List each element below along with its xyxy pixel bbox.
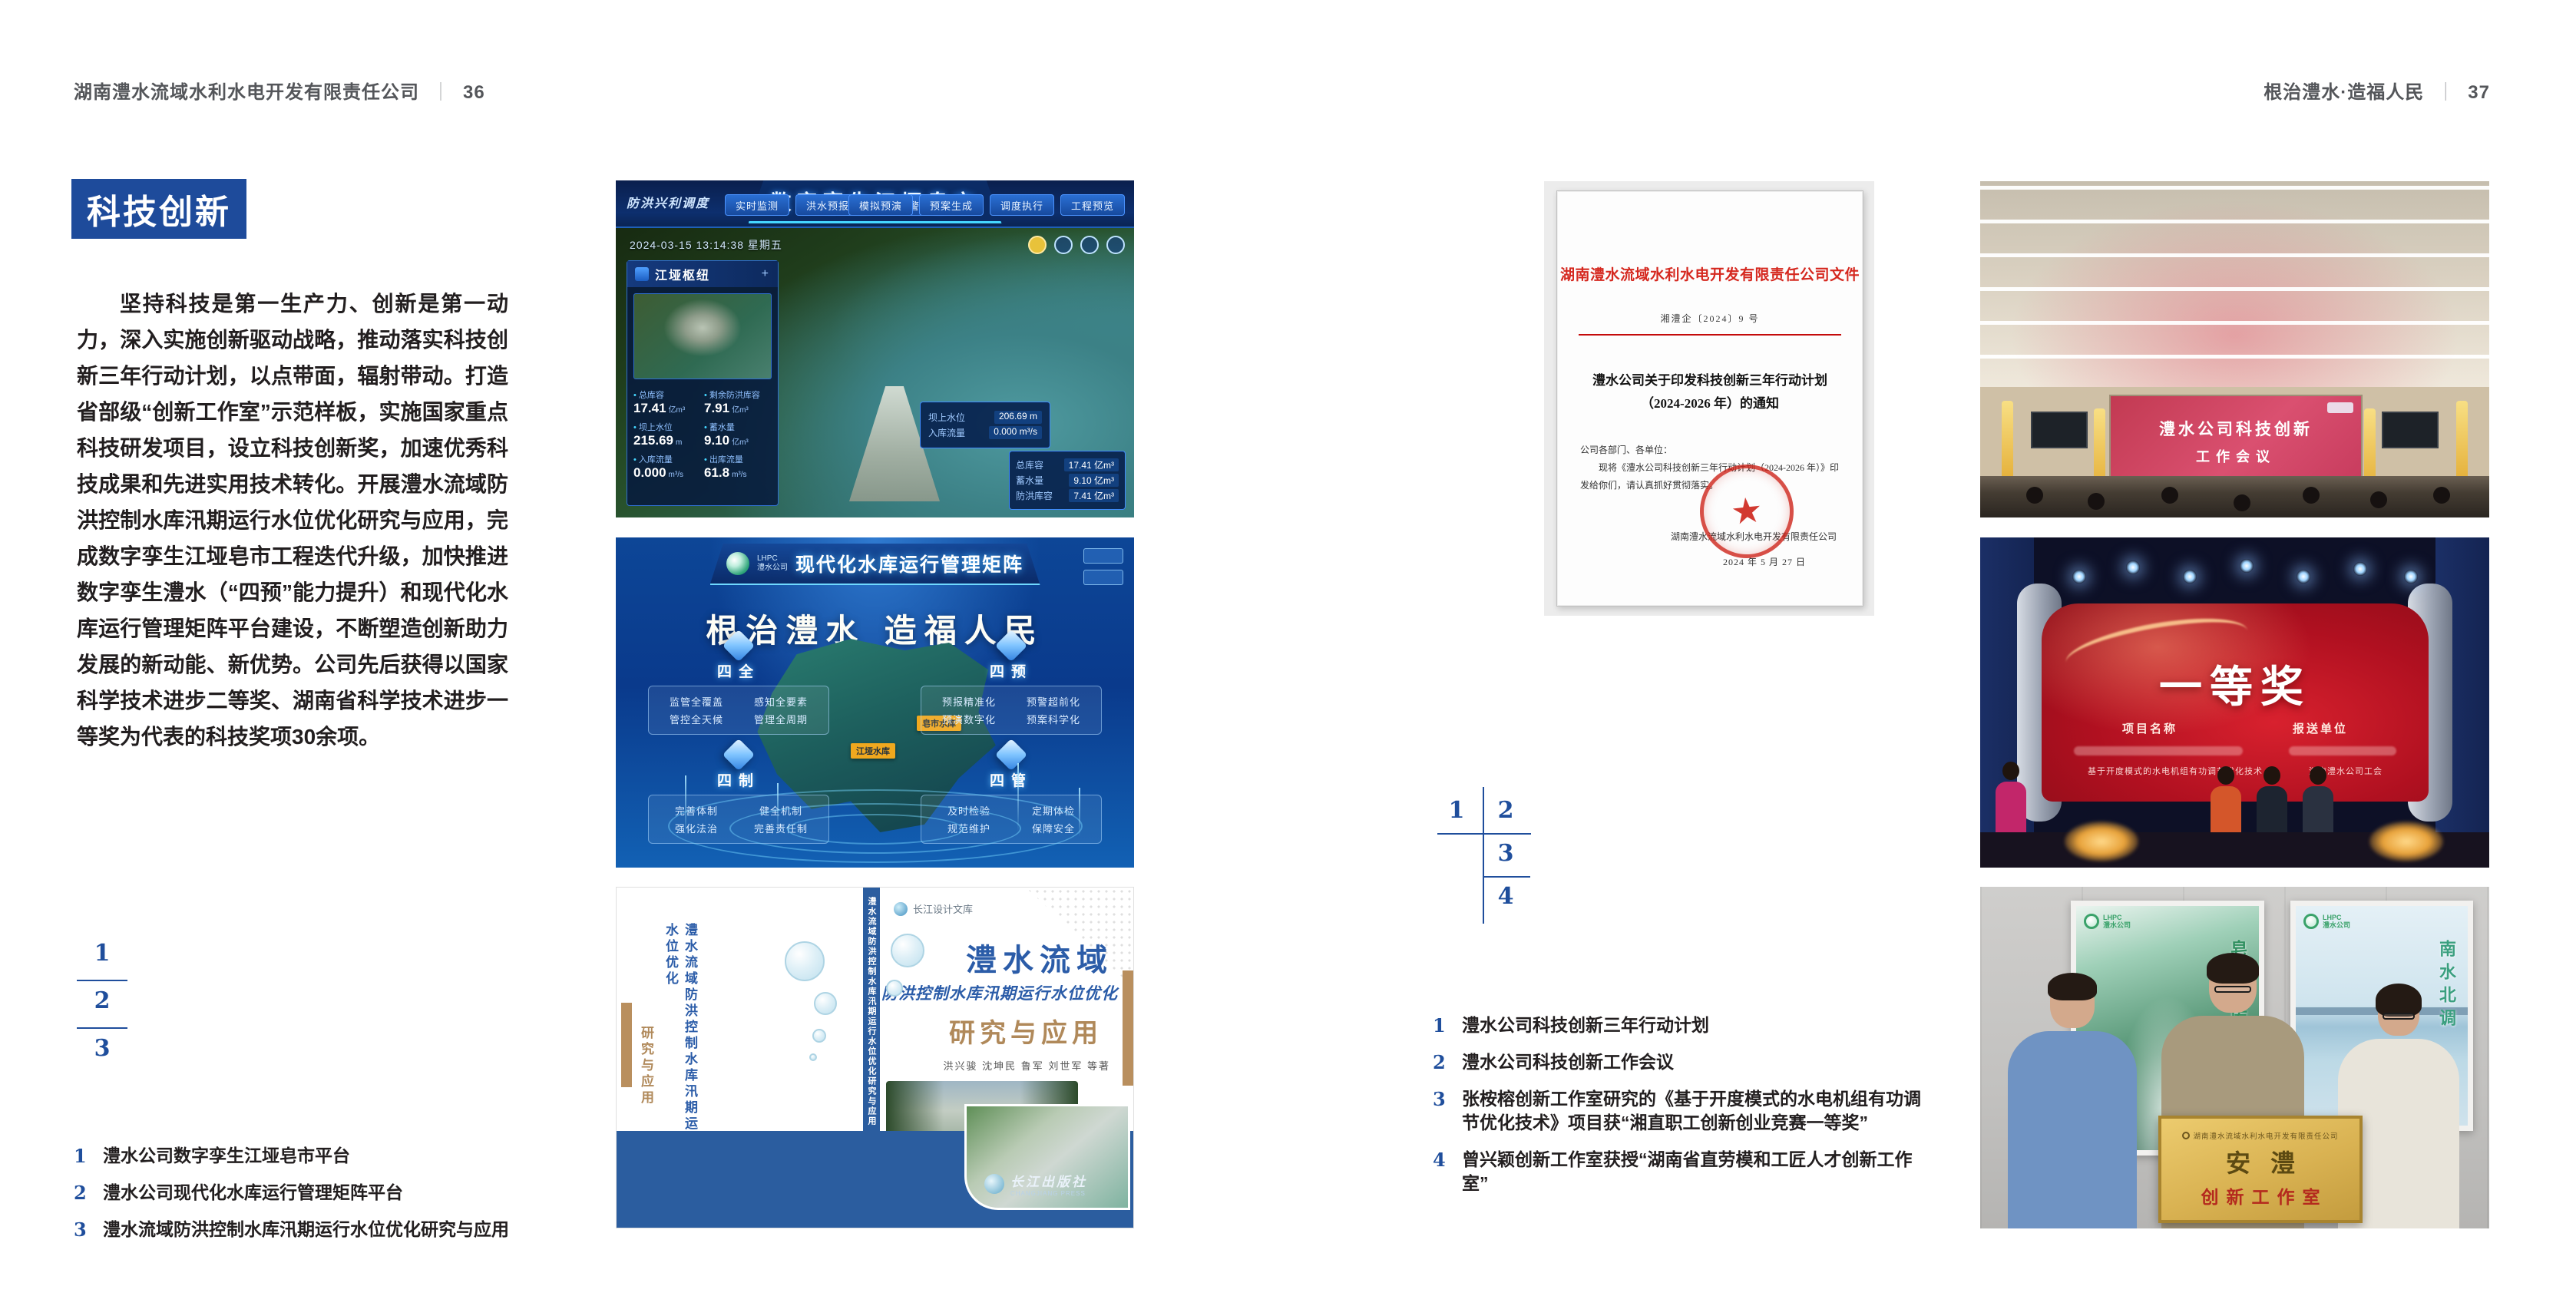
figure-ref-4: 4 [1486, 883, 1525, 910]
document-date: 2024 年 5 月 27 日 [1557, 555, 1863, 568]
caption-number: 2 [74, 1181, 103, 1205]
caption-number: 1 [74, 1144, 103, 1168]
tab-project-preview: 工程预览 [1060, 194, 1125, 216]
tan-accent-bar [621, 1003, 632, 1087]
caption-row: 2 澧水公司科技创新工作会议 [1433, 1050, 1955, 1074]
person-left [2008, 977, 2137, 1228]
blurred-text-bar [2074, 746, 2243, 755]
droplet-icon [812, 1029, 826, 1043]
document-number: 湘澧企〔2024〕9 号 [1557, 312, 1863, 325]
ripple-ring [787, 814, 964, 845]
left-caption-list: 1 澧水公司数字孪生江垭皂市平台 2 澧水公司现代化水库运行管理矩阵平台 3 澧… [74, 1144, 565, 1242]
caption-text: 澧水公司现代化水库运行管理矩阵平台 [103, 1181, 403, 1205]
figure-ref-line [1483, 876, 1530, 878]
platform-timestamp: 2024-03-15 13:14:38 星期五 [630, 237, 782, 253]
diamond-icon [723, 630, 755, 662]
header-separator: ｜ [2424, 82, 2468, 103]
lhpc-logo: LHPC澧水公司 [2084, 914, 2131, 929]
station-stats: 总库容17.41亿m³ 剩余防洪库容7.91亿m³ 坝上水位215.69m 蓄水… [627, 385, 778, 484]
figure-meeting-photo: 澧水公司科技创新 工作会议 [1980, 181, 2489, 517]
caption-number: 1 [1433, 1013, 1462, 1037]
spine-title: 澧水流域防洪控制水库汛期运行水位优化研究与应用 [865, 897, 878, 1126]
camera-icon [1054, 236, 1073, 254]
light-pillar [1079, 788, 1080, 837]
map-side-panel: 总库容17.41 亿m³ 蓄水量9.10 亿m³ 防洪库容7.41 亿m³ [1009, 451, 1126, 510]
locate-icon [1080, 236, 1099, 254]
stat-cell: 坝上水位215.69m [633, 421, 701, 448]
spotlight [2072, 570, 2086, 584]
publisher-mark: 长江出版社 CHANGJIANG PRESS [984, 1171, 1087, 1197]
attendee-head [2026, 487, 2043, 504]
left-page-number: 36 [463, 82, 485, 103]
matrix-title: 现代化水库运行管理矩阵 [795, 550, 1023, 577]
book-title-sub: 防洪控制水库汛期运行水位优化 [881, 981, 1118, 1004]
document-letterhead: 湖南澧水流域水利水电开发有限责任公司文件 [1557, 263, 1863, 284]
attendee-head [2234, 494, 2250, 511]
right-running-head: 根治澧水·造福人民｜37 [2264, 77, 2490, 104]
caption-text: 张桉榕创新工作室研究的《基于开度模式的水电机组有功调节优化技术》项目获“湘直职工… [1462, 1087, 1938, 1135]
caption-number: 3 [1433, 1087, 1462, 1111]
droplet-icon [886, 980, 903, 997]
stat-cell: 入库流量0.000m³/s [633, 453, 701, 481]
figure-award-photo: 一等奖 项目名称 报送单位 基于开度模式的水电机组有功调节优化技术 湖南澧水公司… [1980, 537, 2489, 868]
caption-row: 1 澧水公司科技创新三年行动计划 [1433, 1013, 1955, 1037]
figure-matrix-platform: LHPC澧水公司 现代化水库运行管理矩阵 根治澧水 造福人民 皂市水库 江垭水库… [616, 537, 1134, 868]
caption-row: 3 澧水流域防洪控制水库汛期运行水位优化研究与应用 [74, 1218, 565, 1242]
award-columns: 项目名称 报送单位 [2042, 720, 2429, 736]
left-running-head: 湖南澧水流域水利水电开发有限责任公司｜36 [74, 77, 485, 104]
spotlight [2183, 570, 2197, 584]
plaque-header: 湖南澧水流域水利水电开发有限责任公司 [2182, 1130, 2338, 1141]
caption-row: 2 澧水公司现代化水库运行管理矩阵平台 [74, 1181, 565, 1205]
plaque-logo-icon [2182, 1132, 2190, 1139]
caption-number: 2 [1433, 1050, 1462, 1074]
layers-icon [1028, 236, 1047, 254]
book-authors: 洪兴骏 沈坤民 鲁军 刘世军 等著 [944, 1058, 1110, 1073]
right-page-number: 37 [2468, 82, 2490, 103]
fullscreen-button [1083, 548, 1123, 564]
star-icon: ★ [1729, 492, 1764, 531]
figure-book-cover: 澧水流域防洪控制水库汛期运行水位优化 研究与应用 澧水流域防洪控制水库汛期运行水… [616, 887, 1134, 1228]
brochure-spread: 湖南澧水流域水利水电开发有限责任公司｜36 根治澧水·造福人民｜37 科技创新 … [0, 0, 2576, 1306]
caption-number: 3 [74, 1218, 103, 1242]
droplet-icon [785, 941, 825, 981]
platform-corner-label: 防洪兴利调度 [627, 193, 709, 211]
tab-plan-generation: 预案生成 [919, 194, 984, 216]
matrix-header: LHPC澧水公司 现代化水库运行管理矩阵 [710, 544, 1040, 585]
station-panel-header: 江垭枢纽 + [627, 261, 778, 287]
diamond-icon [723, 739, 755, 771]
body-paragraph: 坚持科技是第一生产力、创新是第一动力，深入实施创新驱动战略，推动落实科技创新三年… [77, 286, 508, 755]
stat-cell: 蓄水量9.10亿m³ [704, 421, 772, 448]
light-pillar [777, 783, 779, 829]
section-badge: 科技创新 [71, 179, 246, 239]
figure-ref-line [1483, 787, 1484, 924]
figure-ref-2: 2 [1486, 797, 1525, 824]
back-cover-title: 澧水流域防洪控制水库汛期运行水位优化 [661, 923, 699, 1153]
book-title-tail: 研究与应用 [949, 1012, 1103, 1050]
stat-cell: 出库流量61.8m³/s [704, 453, 772, 481]
side-screen [2031, 412, 2088, 448]
column-org: 报送单位 [2293, 720, 2348, 736]
attendee-head [2088, 493, 2105, 510]
droplet-icon [809, 1053, 817, 1061]
side-screen [2382, 412, 2439, 448]
caption-text: 澧水公司科技创新三年行动计划 [1462, 1013, 1938, 1037]
series-logo-icon [894, 902, 908, 916]
figure-ref-3: 3 [77, 1035, 127, 1062]
blurred-text-bar [2289, 746, 2396, 755]
attendee-head [2303, 487, 2320, 504]
figure-ref-line [1437, 833, 1531, 835]
figure-ref-3: 3 [1486, 840, 1525, 867]
caption-row: 4 曾兴颖创新工作室获授“湖南省直劳模和工匠人才创新工作室” [1433, 1148, 1955, 1195]
attendee-head [2161, 487, 2178, 504]
station-info-panel: 江垭枢纽 + 总库容17.41亿m³ 剩余防洪库容7.91亿m³ 坝上水位215… [627, 260, 779, 506]
spotlight [2126, 560, 2140, 574]
book-title-main: 澧水流域 [966, 935, 1113, 980]
quadrant-siquan: 四全 监管全覆盖感知全要素 管控全天候管理全周期 [648, 634, 829, 735]
right-caption-list: 1 澧水公司科技创新三年行动计划 2 澧水公司科技创新工作会议 3 张桉榕创新工… [1433, 1013, 1955, 1195]
slogan: 根治澧水·造福人民 [2264, 82, 2424, 103]
award-row [2042, 746, 2429, 755]
lhpc-logo-icon [726, 552, 749, 575]
lhpc-logo-icon [2084, 914, 2099, 929]
glow-orb [2065, 822, 2138, 861]
caption-text: 曾兴颖创新工作室获授“湖南省直劳模和工匠人才创新工作室” [1462, 1148, 1938, 1195]
menu-button [1083, 570, 1123, 585]
caption-row: 3 张桉榕创新工作室研究的《基于开度模式的水电机组有功调节优化技术》项目获“湘直… [1433, 1087, 1955, 1135]
figure-ref-2: 2 [77, 987, 127, 1014]
figure-ref-1: 1 [77, 940, 127, 967]
glow-orb [2369, 822, 2443, 861]
audience-area [1980, 476, 2489, 517]
figure-ref-1: 1 [1437, 797, 1476, 824]
lhpc-logo-text: LHPC澧水公司 [2323, 914, 2350, 929]
tan-accent-bar [1123, 970, 1133, 1086]
map-tooltip: 坝上水位206.69 m 入库流量0.000 m³/s [920, 402, 1050, 448]
light-pillar [685, 775, 686, 837]
document-title: 澧水公司关于印发科技创新三年行动计划 （2024-2026 年）的通知 [1557, 369, 1863, 415]
column-project: 项目名称 [2122, 720, 2178, 736]
host-silhouette [1996, 762, 2026, 841]
figure-ref-line [77, 980, 127, 981]
stat-cell: 总库容17.41亿m³ [633, 388, 701, 416]
lhpc-logo-text: LHPC澧水公司 [2103, 914, 2131, 929]
expand-icon: + [762, 267, 770, 281]
caption-row: 1 澧水公司数字孪生江垭皂市平台 [74, 1144, 565, 1168]
header-separator: ｜ [419, 82, 463, 103]
library-series-label: 长江设计文库 [894, 901, 973, 916]
company-name: 湖南澧水流域水利水电开发有限责任公司 [74, 82, 419, 103]
lhpc-logo-text: LHPC澧水公司 [757, 554, 788, 573]
meeting-screen: 澧水公司科技创新 工作会议 [2109, 395, 2363, 488]
anchor-icon [635, 267, 649, 281]
lhpc-logo: LHPC澧水公司 [2303, 914, 2350, 929]
spotlight [2297, 570, 2310, 584]
droplet-icon [814, 992, 837, 1015]
weather-icon [1106, 236, 1125, 254]
figure-digital-twin-platform: 数字孪生江垭皂市 防洪兴利调度 实时监测 洪水预报 防洪预警 模拟预演 预案生成… [616, 180, 1134, 517]
back-cover-subtitle: 研究与应用 [637, 1026, 656, 1149]
spotlight [2404, 570, 2418, 584]
ceiling-light-strips [1980, 186, 2489, 387]
platform-tool-icons [1028, 236, 1125, 254]
plaque-title: 安澧 [2206, 1144, 2315, 1179]
station-name: 江垭枢纽 [655, 265, 710, 283]
light-pillar [1017, 763, 1019, 832]
tab-dispatch: 调度执行 [990, 194, 1054, 216]
caption-text: 澧水公司数字孪生江垭皂市平台 [103, 1144, 350, 1168]
map-label-jiangya: 江垭水库 [851, 743, 895, 759]
figure-official-document: 湖南澧水流域水利水电开发有限责任公司文件 湘澧企〔2024〕9 号 澧水公司关于… [1544, 181, 1874, 616]
figure-ref-line [77, 1027, 127, 1029]
droplet-icon [891, 934, 924, 967]
caption-text: 澧水公司科技创新工作会议 [1462, 1050, 1938, 1074]
caption-text: 澧水流域防洪控制水库汛期运行水位优化研究与应用 [103, 1218, 509, 1242]
innovation-studio-plaque: 湖南澧水流域水利水电开发有限责任公司 安澧 创新工作室 [2158, 1116, 2363, 1223]
tab-realtime-monitor: 实时监测 [725, 194, 789, 216]
figure-group-photo: LHPC澧水公司 皂市水库 LHPC澧水公司 南水北调 [1980, 887, 2489, 1228]
quadrant-siyu: 四预 预报精准化预警超前化 预演数字化预案科学化 [921, 634, 1102, 735]
red-rule [1579, 334, 1841, 336]
spotlight [2240, 559, 2254, 573]
diamond-icon [995, 630, 1027, 662]
publisher-logo-icon [984, 1174, 1004, 1194]
diamond-icon [995, 739, 1027, 771]
attendee-head [2433, 487, 2450, 504]
screen-logo-icon [2327, 402, 2353, 413]
stat-cell: 剩余防洪库容7.91亿m³ [704, 388, 772, 416]
document-page: 湖南澧水流域水利水电开发有限责任公司文件 湘澧企〔2024〕9 号 澧水公司关于… [1556, 190, 1863, 607]
station-aerial-photo [633, 293, 772, 379]
meeting-screen-line1: 澧水公司科技创新 [2159, 417, 2313, 440]
plaque-subtitle: 创新工作室 [2194, 1182, 2328, 1208]
attendee-head [2370, 491, 2387, 508]
spotlight [2353, 562, 2367, 576]
caption-number: 4 [1433, 1148, 1462, 1172]
meeting-screen-line2: 工作会议 [2196, 446, 2276, 466]
award-headline: 一等奖 [2042, 653, 2429, 715]
document-salutation: 公司各部门、各单位： [1580, 441, 1840, 459]
tab-simulation: 模拟预演 [848, 194, 913, 216]
lhpc-logo-icon [2303, 914, 2319, 929]
